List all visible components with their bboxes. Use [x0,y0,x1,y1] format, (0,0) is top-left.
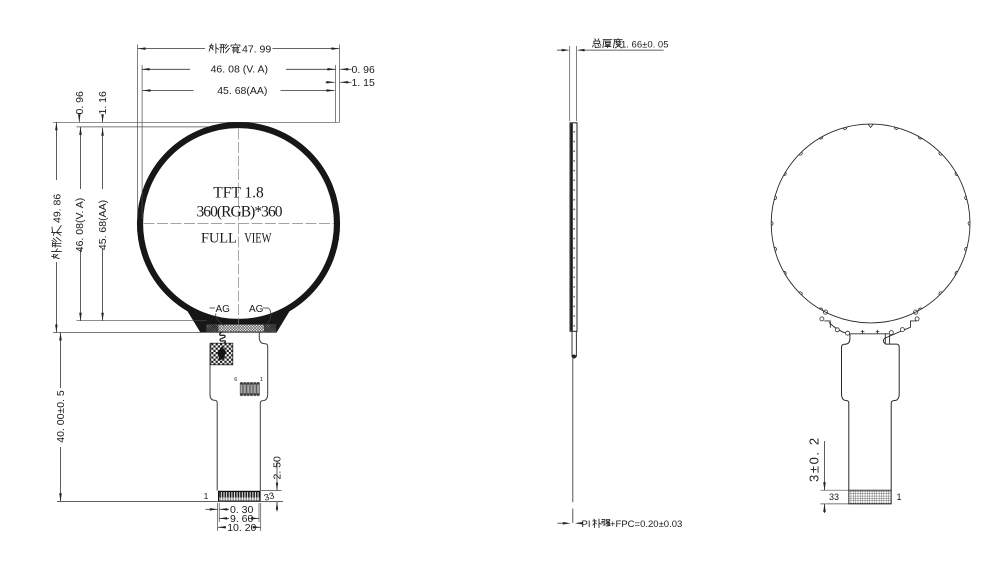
svg-text:1: 1 [897,492,902,502]
svg-text:AG: AG [249,304,264,315]
svg-text:46. 08(V. A): 46. 08(V. A) [74,198,86,252]
svg-text:0. 96: 0. 96 [352,64,376,76]
svg-text:1. 15: 1. 15 [352,77,376,89]
svg-text:VIEW: VIEW [244,230,271,246]
svg-text:1: 1 [260,377,263,383]
svg-text:33: 33 [263,490,275,502]
svg-text:47. 99: 47. 99 [242,44,271,56]
svg-text:360(RGB)*360: 360(RGB)*360 [197,204,283,221]
svg-text:FULL: FULL [201,231,237,247]
svg-text:3±0. 2: 3±0. 2 [807,436,822,482]
svg-text:1: 1 [204,491,209,501]
svg-text:49. 86: 49. 86 [51,194,63,223]
svg-text:PI: PI [582,519,591,530]
svg-text:TFT 1.8: TFT 1.8 [213,185,264,202]
svg-text:1. 16: 1. 16 [97,91,109,115]
svg-text:40. 00±0. 5: 40. 00±0. 5 [55,390,67,443]
svg-text:AG: AG [216,304,231,315]
svg-text:45. 68(AA): 45. 68(AA) [217,85,267,97]
svg-text:1. 66±0. 05: 1. 66±0. 05 [621,39,668,50]
svg-text:+FPC=0.20±0.03: +FPC=0.20±0.03 [610,519,682,530]
svg-text:0. 96: 0. 96 [74,91,86,115]
svg-text:2. 50: 2. 50 [271,456,283,480]
svg-text:10. 20: 10. 20 [227,522,256,534]
svg-text:46. 08 (V. A): 46. 08 (V. A) [211,64,268,76]
svg-text:6: 6 [234,377,237,383]
svg-text:45. 68(AA): 45. 68(AA) [97,200,109,250]
svg-text:33: 33 [829,492,839,502]
